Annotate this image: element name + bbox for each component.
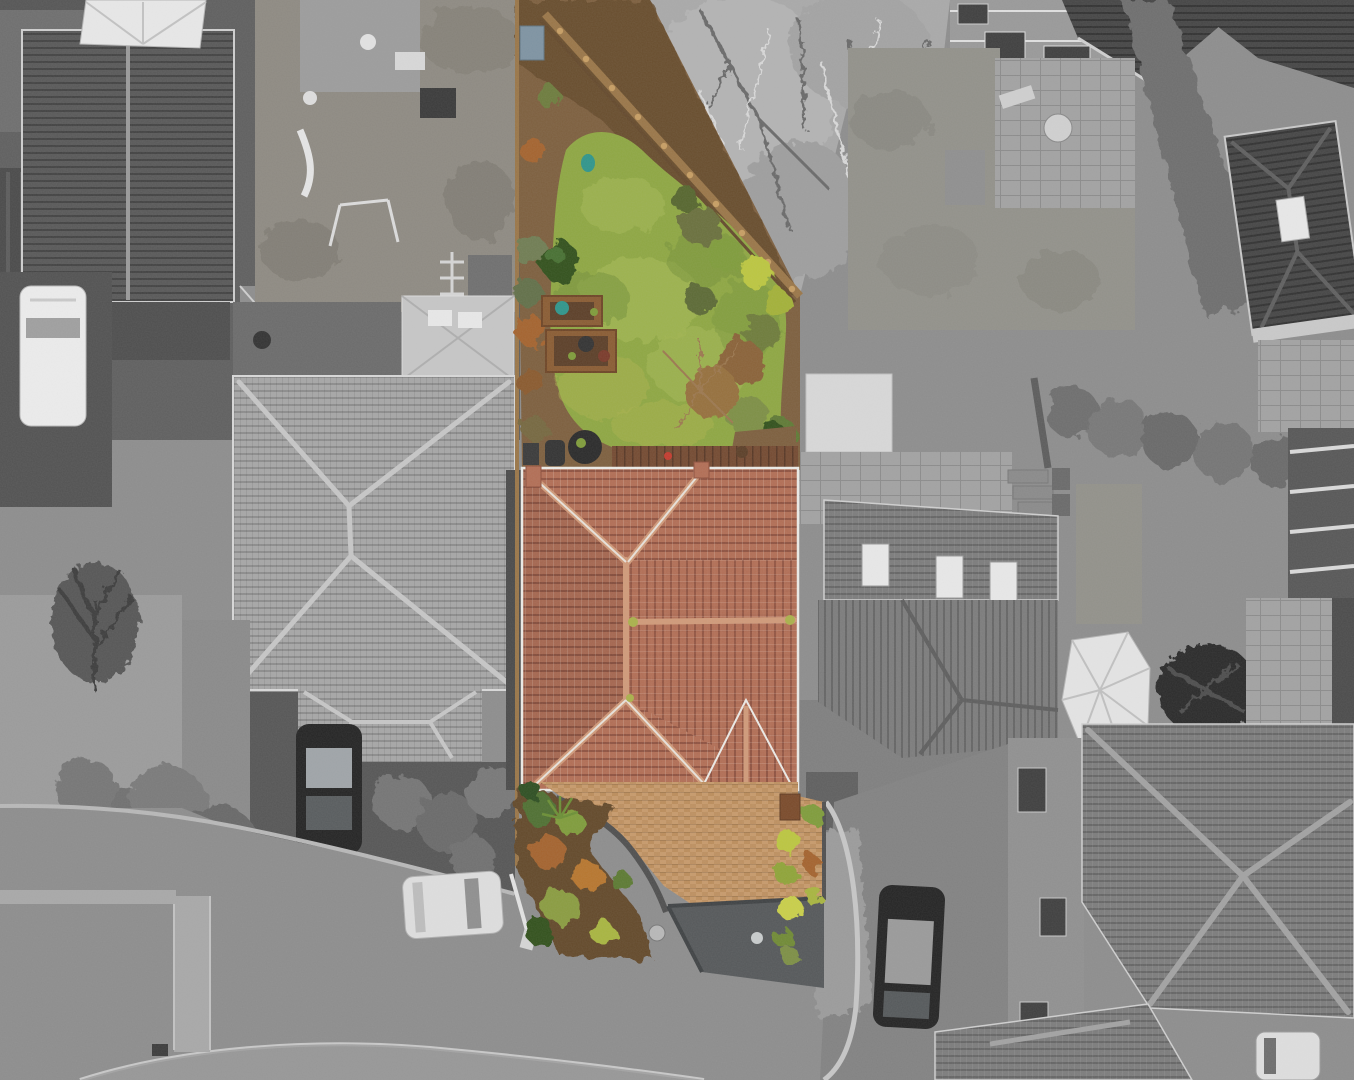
photo-grain-overlay xyxy=(0,0,1354,1080)
aerial-photo xyxy=(0,0,1354,1080)
aerial-photo-canvas xyxy=(0,0,1354,1080)
